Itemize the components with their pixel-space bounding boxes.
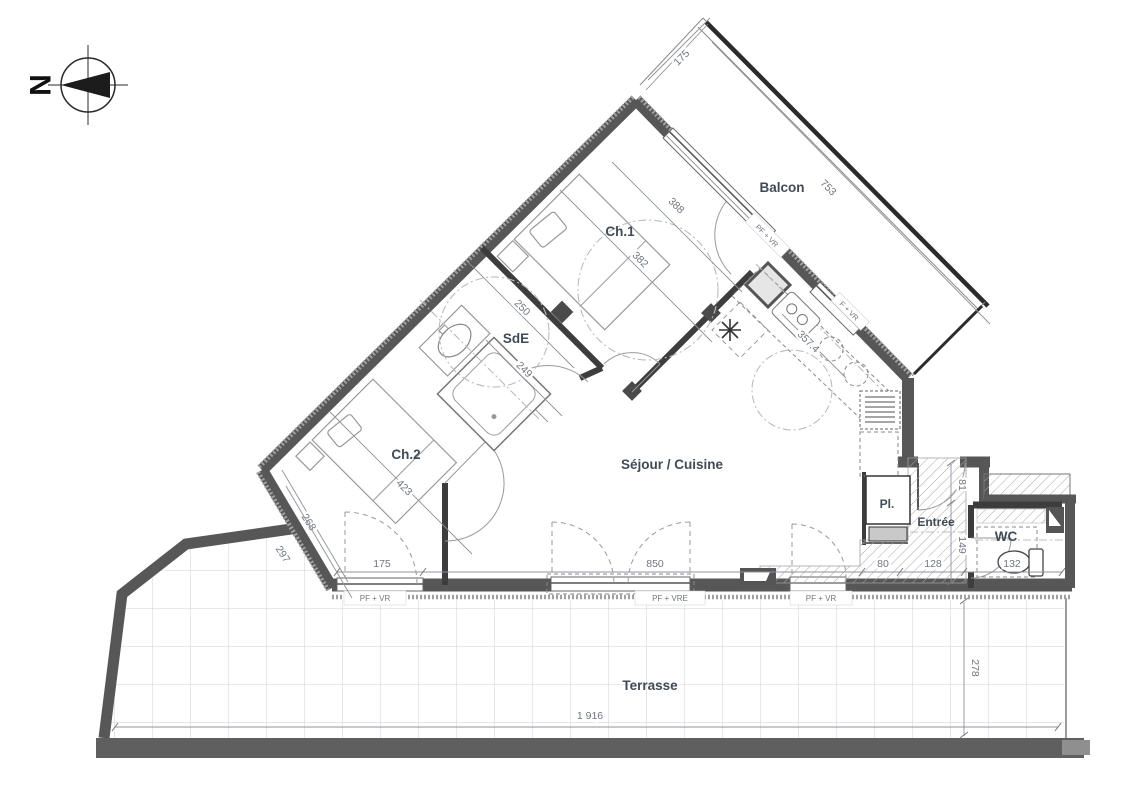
window-label-pf-vr-ch2: PF + VR	[360, 594, 391, 603]
party-wall-hatch	[984, 474, 1070, 498]
floor-plan-svg: PF + VR F + VR PF + VR PF + VRE	[0, 0, 1124, 800]
dim-terrasse-length: 1 916	[577, 710, 603, 722]
snowflake-icon	[719, 319, 741, 341]
dim-win-sejour: 850	[646, 558, 664, 570]
room-label-balcon: Balcon	[759, 180, 804, 195]
dim-pl-width: 80	[877, 558, 889, 570]
north-arrow-icon	[61, 72, 110, 98]
room-label-entree: Entrée	[917, 515, 955, 529]
balcony-top-edge	[640, 18, 703, 85]
balcony-end-rail	[914, 306, 982, 374]
dim-win-ch2: 175	[373, 558, 391, 570]
terrace-south-wall-end	[1062, 740, 1090, 755]
dim-entree-h-a: 81	[956, 479, 968, 491]
fridge	[860, 391, 900, 429]
room-label-sde: SdE	[503, 331, 529, 346]
wc-corner-duct	[1046, 507, 1064, 533]
window-label-pf-vr-entry: PF + VR	[806, 594, 837, 603]
dim-entree-h-b: 149	[956, 536, 968, 554]
compass-north-letter: N	[25, 74, 58, 96]
dim-wc-width: 132	[1003, 558, 1021, 570]
room-label-terrasse: Terrasse	[622, 678, 678, 693]
dim-balcony-width: 175	[671, 47, 692, 68]
window-label-pf-vre: PF + VRE	[652, 594, 688, 603]
room-label-sejour: Séjour / Cuisine	[621, 457, 724, 472]
room-label-wc: WC	[995, 529, 1018, 544]
terrace-south-wall	[96, 738, 1084, 758]
sejour-french-window	[551, 577, 690, 591]
wc-shelf-hatch	[977, 509, 1045, 523]
room-label-pl: Pl.	[880, 497, 895, 511]
room-label-ch2: Ch.2	[391, 447, 420, 462]
dim-entree-width: 128	[924, 558, 942, 570]
room-label-ch1: Ch.1	[605, 224, 635, 239]
compass: N	[25, 45, 129, 125]
dim-balcony-length: 753	[818, 177, 839, 198]
radiator	[740, 568, 776, 585]
dim-terrasse-depth: 278	[969, 659, 981, 677]
floor-plan-page: PF + VR F + VR PF + VR PF + VRE	[0, 0, 1124, 800]
